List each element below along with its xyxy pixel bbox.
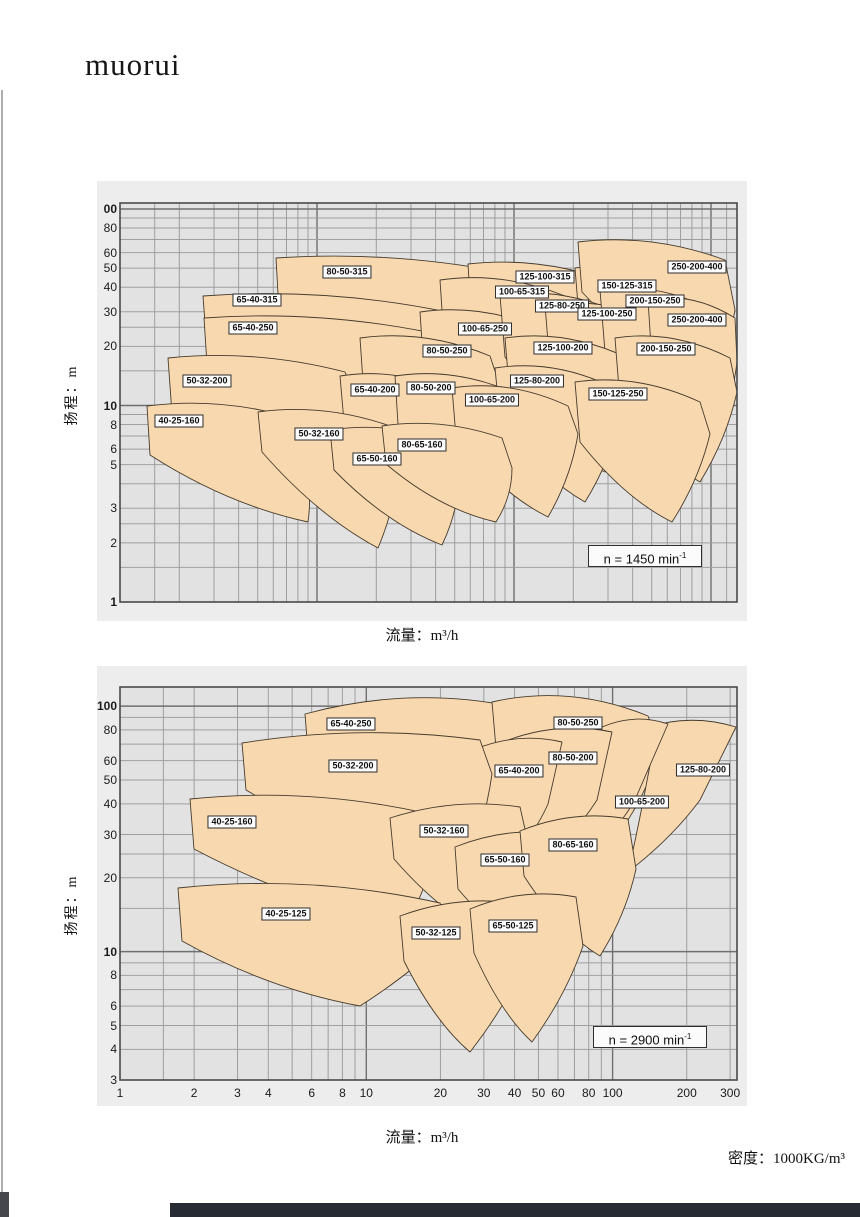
y-axis-tick: 80	[97, 221, 117, 235]
x-axis-tick: 2	[179, 1086, 209, 1100]
y-axis-tick: 6	[97, 999, 117, 1013]
y-axis-tick: 5	[97, 458, 117, 472]
x-axis-tick: 4	[253, 1086, 283, 1100]
y-axis-tick: 1	[97, 595, 117, 609]
model-label: 125-100-315	[515, 271, 574, 284]
model-label: 50-32-125	[411, 927, 460, 940]
pump-chart-overlay-1450: 80-50-31565-40-31565-40-25050-32-20040-2…	[97, 181, 747, 621]
model-label: 40-25-160	[207, 816, 256, 829]
model-label: 80-65-160	[548, 839, 597, 852]
y-axis-tick: 60	[97, 754, 117, 768]
y-axis-tick: 6	[97, 442, 117, 456]
x-axis-tick: 300	[715, 1086, 745, 1100]
corner-mark	[0, 1192, 9, 1217]
model-label: 200-150-250	[625, 295, 684, 308]
y-axis-tick: 40	[97, 280, 117, 294]
model-label: 80-50-200	[548, 752, 597, 765]
head-axis-title-2900: 扬程：m	[61, 860, 79, 950]
model-label: 100-65-315	[495, 286, 549, 299]
model-label: 80-50-315	[322, 266, 371, 279]
model-label: 150-125-315	[597, 280, 656, 293]
head-axis-title-1450: 扬程：m	[61, 350, 79, 440]
model-label: 250-200-400	[667, 314, 726, 327]
flow-axis-title-1450: 流量：m³/h	[97, 624, 747, 645]
y-axis-tick: 4	[97, 1042, 117, 1056]
y-axis-tick: 30	[97, 305, 117, 319]
x-axis-tick: 100	[598, 1086, 628, 1100]
model-label: 80-65-160	[397, 439, 446, 452]
x-axis-tick: 3	[223, 1086, 253, 1100]
y-axis-tick: 8	[97, 418, 117, 432]
model-label: 125-100-200	[533, 342, 592, 355]
y-axis-tick: 00	[97, 202, 117, 216]
x-axis-tick: 6	[297, 1086, 327, 1100]
footer-bar	[170, 1203, 860, 1217]
model-label: 40-25-160	[154, 415, 203, 428]
model-label: 65-50-160	[480, 854, 529, 867]
model-label: 65-50-125	[488, 920, 537, 933]
model-label: 100-65-250	[458, 323, 512, 336]
y-axis-tick: 3	[97, 501, 117, 515]
flow-axis-title-2900: 流量：m³/h	[97, 1126, 747, 1147]
model-label: 65-40-200	[494, 765, 543, 778]
brand-title: muorui	[85, 47, 181, 83]
y-axis-tick: 10	[97, 399, 117, 413]
model-label: 100-65-200	[465, 394, 519, 407]
model-label: 80-50-250	[422, 345, 471, 358]
model-label: 100-65-200	[615, 796, 669, 809]
model-label: 250-200-400	[667, 261, 726, 274]
density-note: 密度：1000KG/m³	[728, 1147, 845, 1168]
y-axis-tick: 100	[97, 699, 117, 713]
model-label: 200-150-250	[636, 343, 695, 356]
y-axis-tick: 30	[97, 828, 117, 842]
y-axis-tick: 5	[97, 1019, 117, 1033]
model-label: 65-40-250	[228, 322, 277, 335]
model-label: 50-32-160	[294, 428, 343, 441]
model-label: 50-32-200	[328, 760, 377, 773]
model-label: 65-40-315	[232, 294, 281, 307]
model-label: 80-50-250	[553, 717, 602, 730]
y-axis-tick: 60	[97, 246, 117, 260]
x-axis-tick: 10	[351, 1086, 381, 1100]
y-axis-tick: 20	[97, 339, 117, 353]
x-axis-tick: 20	[425, 1086, 455, 1100]
y-axis-tick: 2	[97, 536, 117, 550]
model-label: 50-32-200	[182, 375, 231, 388]
y-axis-tick: 80	[97, 723, 117, 737]
pump-chart-panel-2900: 65-40-25080-50-25050-32-20080-50-20065-4…	[97, 666, 747, 1106]
y-axis-tick: 8	[97, 968, 117, 982]
y-axis-tick: 10	[97, 945, 117, 959]
left-edge-rule	[1, 90, 3, 1195]
model-label: 150-125-250	[588, 388, 647, 401]
y-axis-tick: 3	[97, 1073, 117, 1087]
x-axis-tick: 30	[469, 1086, 499, 1100]
model-label: 40-25-125	[261, 908, 310, 921]
x-axis-tick: 1	[105, 1086, 135, 1100]
catalog-page: muorui 80-50-31565-40-31565-40-25050-32-…	[0, 0, 860, 1217]
model-label: 65-40-250	[326, 718, 375, 731]
speed-badge: n = 1450 min-1	[588, 545, 702, 567]
x-axis-tick: 200	[672, 1086, 702, 1100]
x-axis-tick: 60	[543, 1086, 573, 1100]
model-label: 125-80-200	[676, 764, 730, 777]
y-axis-tick: 50	[97, 261, 117, 275]
y-axis-tick: 40	[97, 797, 117, 811]
pump-chart-overlay-2900: 65-40-25080-50-25050-32-20080-50-20065-4…	[97, 666, 747, 1106]
speed-badge: n = 2900 min-1	[593, 1026, 707, 1048]
model-label: 50-32-160	[419, 825, 468, 838]
y-axis-tick: 20	[97, 871, 117, 885]
y-axis-tick: 50	[97, 773, 117, 787]
model-label: 125-80-200	[510, 375, 564, 388]
model-label: 125-100-250	[577, 308, 636, 321]
model-label: 65-50-160	[352, 453, 401, 466]
pump-chart-panel-1450: 80-50-31565-40-31565-40-25050-32-20040-2…	[97, 181, 747, 621]
model-label: 65-40-200	[350, 384, 399, 397]
model-label: 80-50-200	[406, 382, 455, 395]
